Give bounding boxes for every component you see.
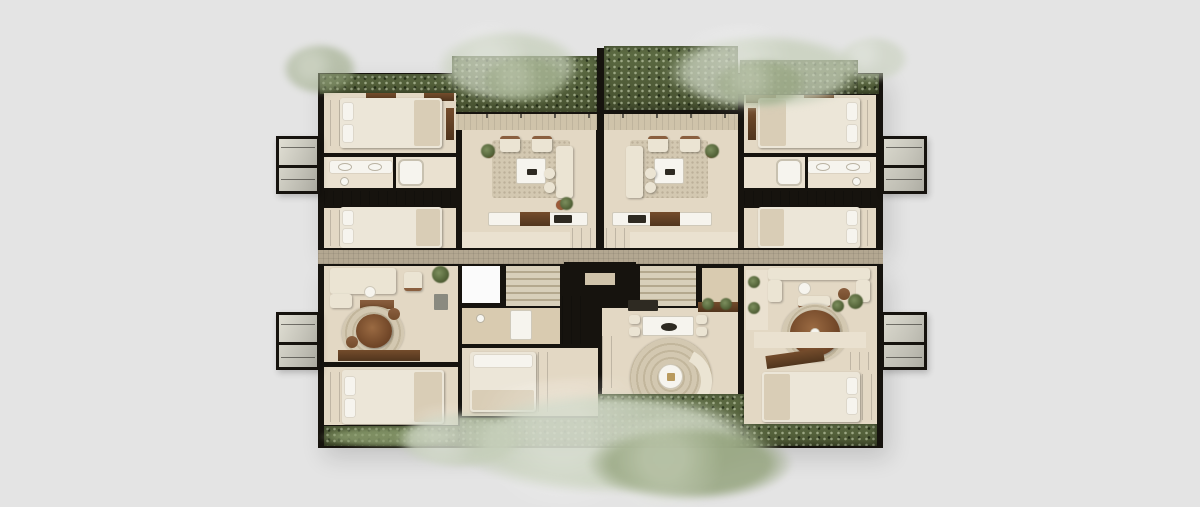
balcony-rail [281,324,315,325]
pouf [645,168,656,179]
bathroom-partition [805,157,808,188]
plant [702,298,714,310]
party-wall [597,48,604,248]
hall-wood-floor [744,191,876,205]
balcony-rail [886,147,922,148]
pillow [847,211,857,225]
desk [850,352,874,370]
centerpiece [661,323,677,331]
sink [846,163,860,171]
sink [368,163,382,171]
balcony-rail [281,357,315,358]
pillow [847,229,857,243]
balcony-divider [884,342,924,345]
plant [748,276,760,288]
balcony-glass-box [881,136,927,194]
pillow [474,355,532,367]
armchair [500,136,520,152]
pillow [343,211,353,225]
sofa [626,146,643,198]
kitchen-appliance [628,300,658,311]
counter [754,332,866,348]
balcony-rail [281,147,315,148]
toilet [476,314,485,323]
kitchenette [562,296,584,344]
dining-chair [696,315,707,324]
sideboard [338,350,420,361]
cooktop [554,215,572,223]
bathroom-partition [393,157,396,188]
plant [432,266,449,283]
round-dining-table [356,314,392,348]
balcony-divider [279,165,317,168]
bed [340,207,442,248]
side-table [364,286,376,298]
pillow [847,125,857,142]
balcony-divider [279,342,317,345]
balcony-rail [281,179,315,180]
kitchen-counter [630,232,738,248]
headboard [330,372,342,422]
cooktop [628,215,646,223]
sink [816,163,830,171]
tree-canopy [560,416,820,507]
pillow [847,398,857,414]
plant [832,300,844,312]
table-tray [665,169,675,175]
pillow [345,399,355,417]
toilet [852,177,861,186]
dining-chair [696,327,707,336]
toilet [340,177,349,186]
headboard [862,374,874,420]
sink [338,163,352,171]
dining-chair [629,327,640,336]
plant [481,144,495,158]
table-accent [667,373,675,381]
sofa-arm [768,280,782,302]
plant [705,144,719,158]
balcony-glass-box [881,312,927,370]
side-table [798,282,811,295]
armchair [648,136,668,152]
island-wood-section [650,212,680,226]
entry-step [606,228,628,248]
lobby-void [462,266,500,303]
armchair [404,272,422,291]
bathroom-vanity [808,161,870,173]
planter-box [434,294,448,310]
balcony-rail [886,324,922,325]
bed [340,98,442,148]
dining-chair [346,336,358,348]
bed-throw [416,209,440,246]
plant [560,197,573,210]
balcony-glass-box [276,136,320,194]
dining-chair [388,308,400,320]
balcony-rail [886,357,922,358]
architectural-floor-plan-render [0,0,1200,507]
bed-throw [760,209,784,246]
plant [848,294,863,309]
table-tray [527,169,537,175]
coffee-table [516,158,546,184]
stair-flight-left [504,266,562,306]
pillow [343,229,353,243]
armchair [680,136,700,152]
coffee-table [654,158,684,184]
pouf [544,182,555,193]
pillow [345,377,355,395]
plant [720,298,732,310]
bed [758,207,860,248]
chaise [330,294,352,308]
sofa-back [768,268,870,280]
island-wood-section [520,212,550,226]
elevator-cab [582,270,618,288]
pillow [343,103,353,120]
pouf [645,182,656,193]
entry-step [572,228,594,248]
kitchen-counter [462,232,570,248]
balcony-glass-box [276,312,320,370]
sectional-sofa [330,268,396,294]
balcony-rail [886,179,922,180]
shower [510,310,532,340]
bed-throw [414,100,440,146]
bathtub [398,159,424,186]
bathtub [776,159,802,186]
tree-canopy [828,30,918,88]
balcony-divider [884,165,924,168]
elevator [564,262,636,296]
pillow [343,125,353,142]
plant [748,302,760,314]
sofa [556,146,573,198]
bench [446,108,454,140]
armchair [532,136,552,152]
hall-wood-floor [324,191,456,205]
bathroom-vanity [330,161,392,173]
pouf [544,168,555,179]
dining-chair [629,315,640,324]
pillow [847,378,857,394]
dining-table [642,316,694,336]
